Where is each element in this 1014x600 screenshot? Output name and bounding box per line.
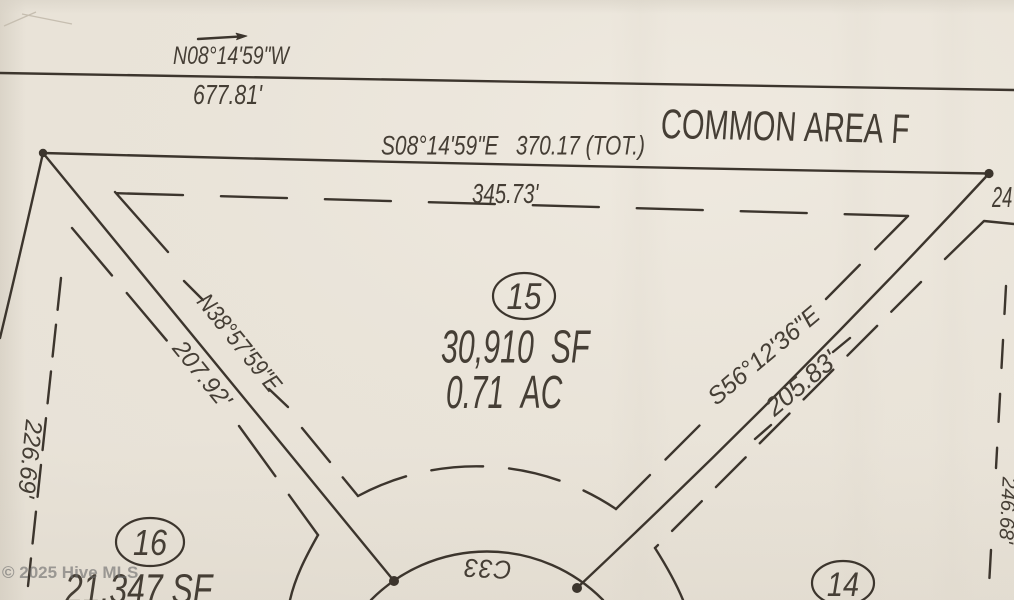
svg-text:677.81': 677.81' xyxy=(193,79,263,111)
svg-text:© 2025 Hive MLS: © 2025 Hive MLS xyxy=(2,563,138,582)
svg-text:N08°14'59"W: N08°14'59"W xyxy=(173,42,291,70)
svg-text:15: 15 xyxy=(507,277,543,318)
svg-text:345.73': 345.73' xyxy=(472,179,539,210)
svg-text:14: 14 xyxy=(827,565,859,600)
svg-text:S08°14'59"E 370.17 (TOT.): S08°14'59"E 370.17 (TOT.) xyxy=(381,131,645,161)
svg-text:C33: C33 xyxy=(463,553,513,584)
svg-text:COMMON AREA F: COMMON AREA F xyxy=(659,101,911,152)
svg-text:30,910 SF: 30,910 SF xyxy=(441,322,591,373)
svg-text:0.71 AC: 0.71 AC xyxy=(446,368,563,419)
svg-text:24: 24 xyxy=(991,182,1012,214)
svg-text:16: 16 xyxy=(133,524,167,564)
